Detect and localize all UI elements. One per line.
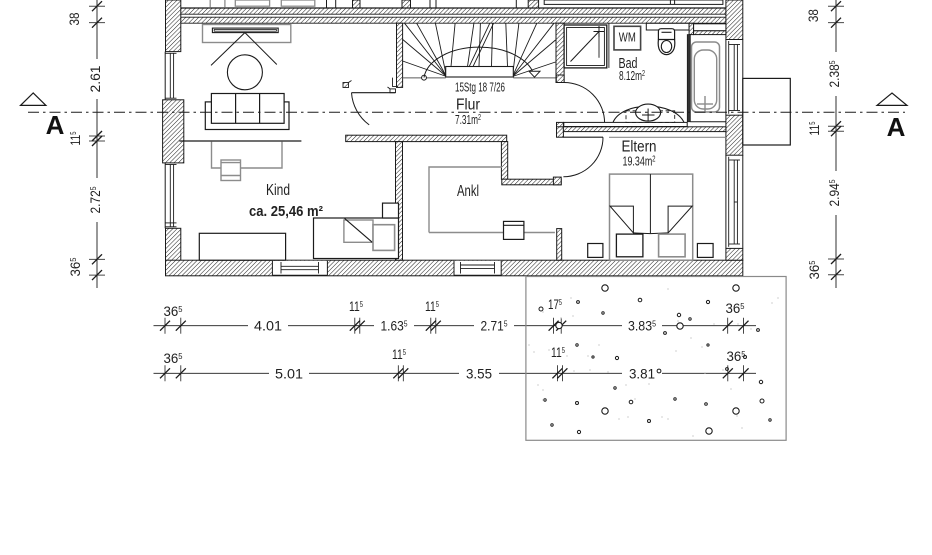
svg-text:Ankl: Ankl bbox=[457, 183, 479, 200]
svg-text:3.81: 3.81 bbox=[629, 366, 655, 382]
svg-text:3.55: 3.55 bbox=[466, 366, 492, 382]
svg-text:8.12m2: 8.12m2 bbox=[619, 68, 645, 83]
svg-text:Kind: Kind bbox=[266, 182, 290, 199]
svg-text:WM: WM bbox=[619, 30, 636, 45]
svg-text:38: 38 bbox=[66, 12, 82, 25]
svg-text:4.01: 4.01 bbox=[254, 318, 282, 334]
svg-text:15Stg 18 7/26: 15Stg 18 7/26 bbox=[455, 80, 505, 95]
svg-text:7.31m2: 7.31m2 bbox=[455, 112, 481, 127]
svg-text:A: A bbox=[46, 110, 65, 140]
svg-text:A: A bbox=[887, 112, 906, 142]
svg-text:19.34m2: 19.34m2 bbox=[623, 154, 656, 169]
svg-text:38: 38 bbox=[805, 9, 821, 22]
svg-text:2.61: 2.61 bbox=[87, 65, 103, 92]
svg-text:Flur: Flur bbox=[456, 97, 481, 114]
svg-text:ca. 25,46 m²: ca. 25,46 m² bbox=[249, 204, 323, 220]
svg-text:5.01: 5.01 bbox=[275, 366, 303, 382]
